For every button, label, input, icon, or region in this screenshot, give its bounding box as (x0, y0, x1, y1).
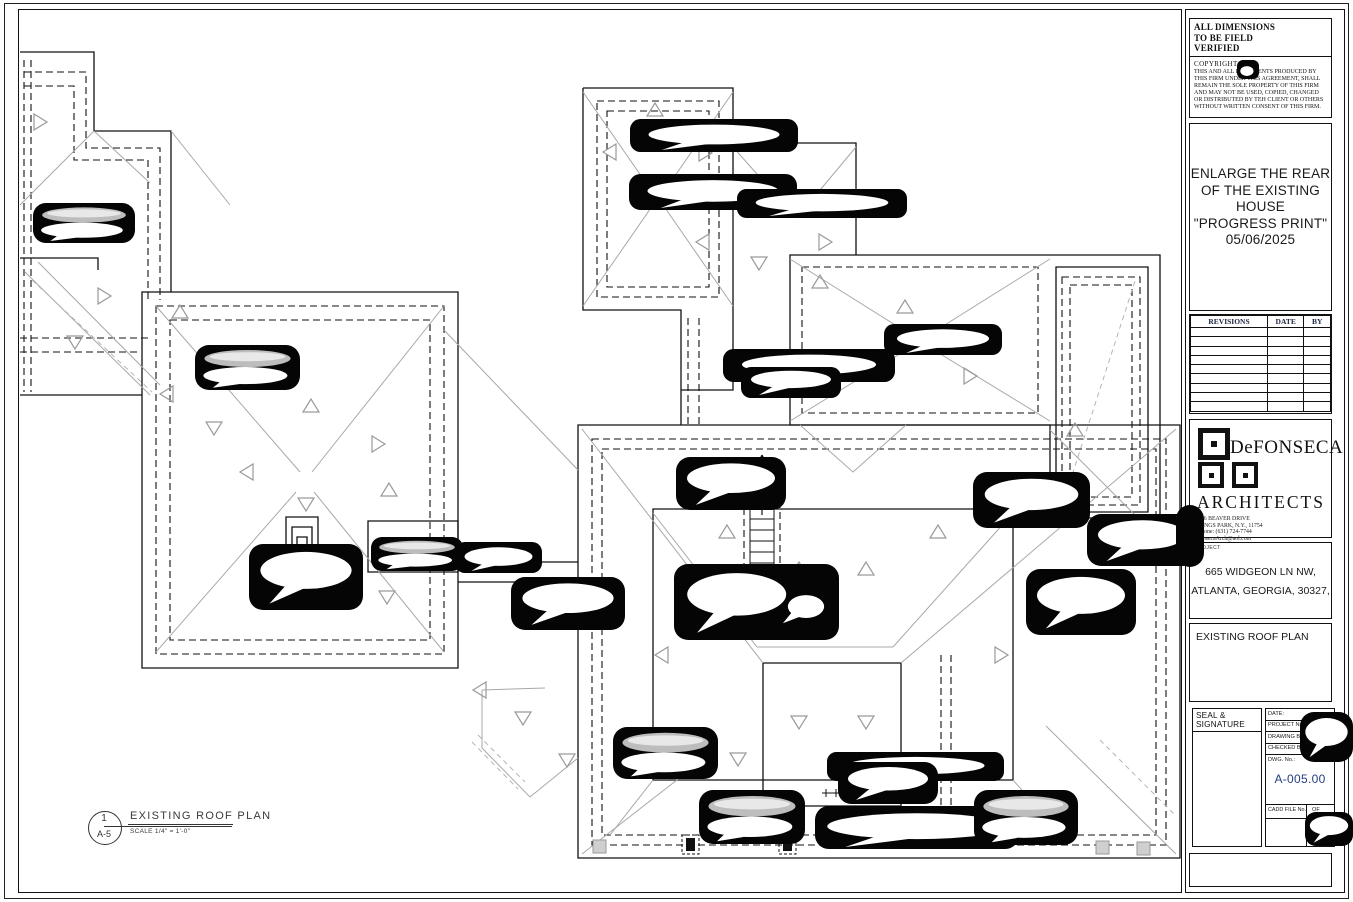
revision-row (1191, 393, 1331, 402)
cadd-file-row: CADD FILE No. OF (1266, 804, 1334, 846)
print-title-line: ENLARGE THE REAR (1190, 166, 1331, 183)
drawing-by-field: DRAWING BY: (1266, 732, 1334, 744)
seal-fields-box: DATE: PROJECT No. DRAWING BY: CHECKED BY… (1265, 708, 1335, 847)
revision-row (1191, 383, 1331, 392)
cadd-underline (1266, 818, 1306, 819)
revisions-box: REVISIONS DATE BY (1189, 314, 1332, 414)
architect-address-1: 166 BEAVER DRIVE (1198, 516, 1263, 523)
of-label: OF (1312, 807, 1320, 813)
project-box: PROJECT 665 WIDGEON LN NW, ATLANTA, GEOR… (1189, 542, 1332, 619)
print-title-line: HOUSE (1190, 199, 1331, 216)
revisions-table: REVISIONS DATE BY (1190, 315, 1331, 412)
notes-box: ALL DIMENSIONS TO BE FIELD VERIFIED COPY… (1189, 18, 1332, 118)
copyright-body: THIS AND ALL DOCUMENTS PRODUCED BY THIS … (1190, 68, 1331, 113)
revision-row (1191, 402, 1331, 411)
callout-underline (128, 824, 233, 825)
date-field: DATE: (1266, 709, 1334, 721)
revisions-header: REVISIONS (1191, 316, 1268, 328)
revision-row (1191, 337, 1331, 346)
drawing-callout: 1 A-5 EXISTING ROOF PLAN SCALE 1/4" = 1'… (88, 809, 328, 849)
project-address-1: 665 WIDGEON LN NW, (1190, 563, 1331, 582)
callout-scale: SCALE 1/4" = 1'-0" (130, 828, 190, 835)
seal-signature-label: SEAL & SIGNATURE (1193, 709, 1261, 732)
print-title-line: OF THE EXISTING (1190, 183, 1331, 200)
checked-by-field: CHECKED BY: (1266, 744, 1334, 756)
logo-dot-icon (1209, 473, 1214, 478)
by-header: BY (1304, 316, 1331, 328)
architect-name-line2: ARCHITECTS (1197, 492, 1325, 513)
project-no-field: PROJECT No. (1266, 721, 1334, 733)
architect-contact: 166 BEAVER DRIVE KINGS PARK, N.Y., 11754… (1198, 516, 1263, 542)
revision-row (1191, 346, 1331, 355)
drawing-title: EXISTING ROOF PLAN (1190, 624, 1331, 643)
detail-number: 1 (88, 813, 120, 824)
print-title-line: "PROGRESS PRINT" (1190, 216, 1331, 233)
dimensions-note: ALL DIMENSIONS TO BE FIELD VERIFIED (1190, 19, 1331, 57)
architect-logo-square-3 (1232, 462, 1258, 488)
revision-row (1191, 374, 1331, 383)
cadd-file-label: CADD FILE No. (1268, 807, 1306, 813)
date-header: DATE (1268, 316, 1304, 328)
callout-title: EXISTING ROOF PLAN (130, 810, 271, 822)
callout-divider-line (104, 826, 232, 827)
print-title-line: 05/06/2025 (1190, 232, 1331, 249)
dwg-number: A-005.00 (1266, 767, 1334, 786)
architect-name-line1: DeFONSECA (1230, 437, 1343, 459)
sheet-reference: A-5 (88, 829, 120, 839)
project-address-2: ATLANTA, GEORGIA, 30327, (1190, 582, 1331, 601)
architect-logo-square-1 (1198, 428, 1230, 460)
print-title-box: ENLARGE THE REAROF THE EXISTINGHOUSE"PRO… (1189, 123, 1332, 311)
drawing-area-frame (18, 9, 1182, 893)
architect-logo-square-2 (1198, 462, 1224, 488)
project-address: 665 WIDGEON LN NW, ATLANTA, GEORGIA, 303… (1190, 543, 1331, 601)
revision-row (1191, 365, 1331, 374)
title-block: ALL DIMENSIONS TO BE FIELD VERIFIED COPY… (1185, 9, 1345, 893)
empty-bottom-box (1189, 853, 1332, 887)
revision-row (1191, 355, 1331, 364)
drawing-title-box: EXISTING ROOF PLAN (1189, 623, 1332, 702)
print-title: ENLARGE THE REAROF THE EXISTINGHOUSE"PRO… (1190, 124, 1331, 249)
logo-dot-icon (1211, 441, 1217, 447)
copyright-heading: COPYRIGHT (1190, 57, 1331, 68)
sheet-page: ALL DIMENSIONS TO BE FIELD VERIFIED COPY… (0, 0, 1353, 902)
dwg-no-field: DWG. No.: (1266, 755, 1334, 767)
logo-dot-icon (1243, 473, 1248, 478)
cadd-divider (1306, 805, 1307, 846)
seal-block: SEAL & SIGNATURE DATE: PROJECT No. DRAWI… (1189, 708, 1332, 849)
architect-box: DeFONSECA ARCHITECTS 166 BEAVER DRIVE KI… (1189, 419, 1332, 538)
project-label: PROJECT (1194, 545, 1221, 551)
architect-phone: Phone: (631) 724-7744 (1198, 529, 1263, 536)
seal-signature-box: SEAL & SIGNATURE (1192, 708, 1262, 847)
revision-row (1191, 328, 1331, 337)
